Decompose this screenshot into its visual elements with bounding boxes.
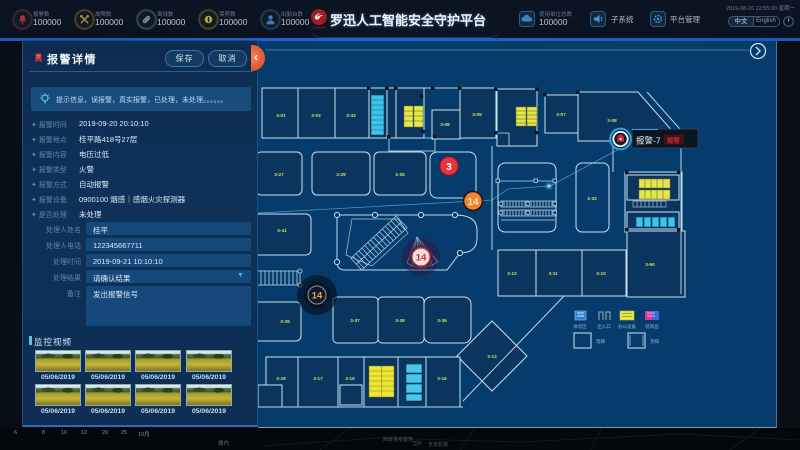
svg-text:3-43: 3-43 <box>346 113 356 118</box>
svg-text:3-32: 3-32 <box>587 196 597 201</box>
svg-text:休息区: 休息区 <box>573 323 587 330</box>
svg-text:3-41: 3-41 <box>277 228 287 233</box>
svg-text:3-11: 3-11 <box>548 271 558 276</box>
svg-text:3-39: 3-39 <box>280 319 290 324</box>
svg-text:3-13: 3-13 <box>487 354 497 359</box>
svg-text:3-27: 3-27 <box>274 172 284 177</box>
svg-text:14: 14 <box>416 253 427 264</box>
svg-text:3-12: 3-12 <box>507 271 517 276</box>
svg-text:14: 14 <box>467 197 479 208</box>
svg-text:报警: 报警 <box>667 135 681 144</box>
svg-text:3-08: 3-08 <box>440 122 450 127</box>
svg-text:3-03: 3-03 <box>311 113 321 118</box>
svg-text:14: 14 <box>312 291 323 302</box>
svg-text:3-08: 3-08 <box>607 118 617 123</box>
svg-text:3-07: 3-07 <box>556 112 566 117</box>
svg-text:报警-7: 报警-7 <box>636 136 661 146</box>
svg-text:3-15: 3-15 <box>437 376 447 381</box>
svg-text:3-35: 3-35 <box>437 318 447 323</box>
svg-text:3-35: 3-35 <box>395 172 405 177</box>
svg-text:3-05: 3-05 <box>472 112 482 117</box>
svg-text:3-50: 3-50 <box>645 262 655 267</box>
svg-text:电梯: 电梯 <box>596 338 605 345</box>
svg-text:3-16: 3-16 <box>345 376 355 381</box>
svg-text:3-10: 3-10 <box>596 271 606 276</box>
svg-text:3: 3 <box>446 162 452 173</box>
svg-text:3-37: 3-37 <box>350 318 360 323</box>
svg-text:货梯: 货梯 <box>650 338 659 345</box>
svg-text:出入口: 出入口 <box>597 323 611 330</box>
svg-text:办公设备: 办公设备 <box>618 323 636 330</box>
svg-text:3-29: 3-29 <box>336 172 346 177</box>
svg-text:3-01: 3-01 <box>276 113 286 118</box>
svg-text:装饰品: 装饰品 <box>645 323 659 330</box>
svg-text:3-38: 3-38 <box>395 318 405 323</box>
svg-text:3-19: 3-19 <box>276 376 286 381</box>
svg-text:LUOXUN: LUOXUN <box>313 26 326 30</box>
svg-text:3-17: 3-17 <box>313 376 323 381</box>
